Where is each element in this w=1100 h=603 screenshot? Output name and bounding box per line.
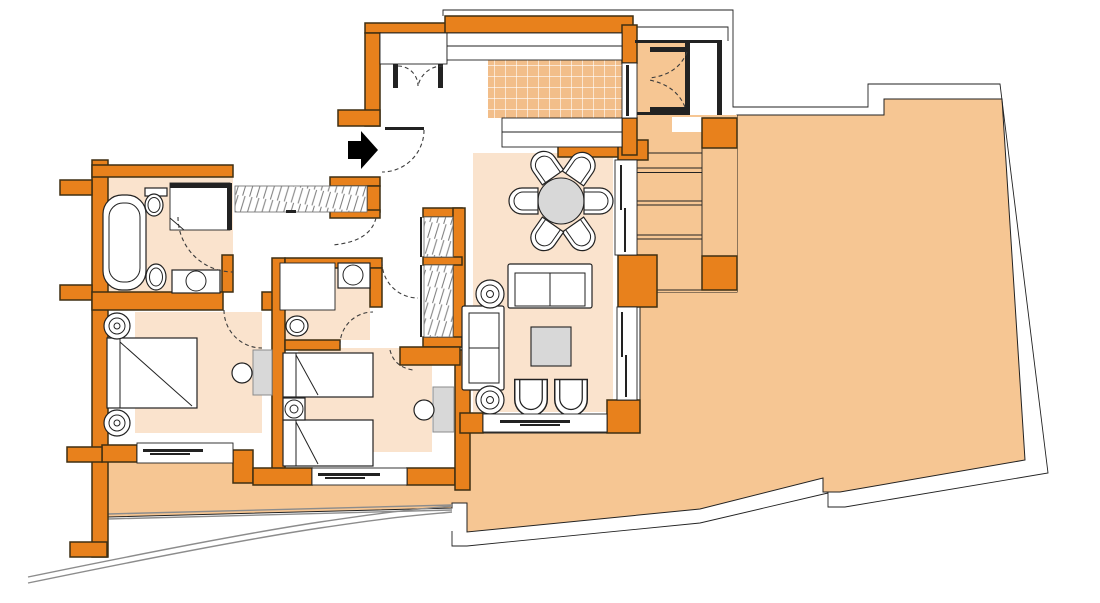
bidet bbox=[146, 264, 166, 290]
shower bbox=[170, 183, 232, 230]
round-dining-table bbox=[538, 178, 584, 224]
kitchen-tiled-floor bbox=[488, 58, 622, 118]
terrace-storage-room-floor bbox=[637, 43, 685, 113]
sliding-glass-door bbox=[615, 160, 637, 255]
storage-door-leaf bbox=[650, 47, 687, 52]
stool bbox=[232, 363, 252, 383]
sliding-glass-door bbox=[617, 307, 637, 400]
storage-door-leaf bbox=[650, 107, 685, 112]
bedroom2-window bbox=[312, 468, 407, 485]
terrace-column bbox=[702, 118, 737, 148]
living-window bbox=[483, 414, 607, 432]
single-bed bbox=[283, 420, 373, 466]
floor-plant bbox=[476, 280, 504, 308]
sofa bbox=[508, 264, 592, 308]
dresser bbox=[433, 387, 454, 432]
dresser bbox=[253, 350, 272, 395]
step-landing-notch bbox=[672, 117, 702, 132]
sofa bbox=[462, 306, 504, 390]
toilet bbox=[286, 316, 308, 336]
bedroom-window bbox=[137, 443, 233, 463]
washbasin-vanity bbox=[172, 270, 220, 293]
round-nightstand bbox=[104, 410, 130, 436]
kitchen-counter-top bbox=[447, 33, 622, 60]
round-nightstand bbox=[104, 313, 130, 339]
stool bbox=[414, 400, 434, 420]
hallway-wardrobe bbox=[235, 186, 367, 213]
single-bed bbox=[283, 353, 373, 397]
coffee-table bbox=[531, 327, 571, 366]
kitchen-counter-bottom bbox=[502, 118, 622, 147]
entrance-door bbox=[385, 127, 424, 130]
bathtub bbox=[103, 195, 146, 290]
double-bed bbox=[107, 338, 197, 408]
floor-plant bbox=[476, 386, 504, 414]
nightstand bbox=[283, 398, 305, 420]
roof-overhang-line bbox=[633, 27, 728, 41]
washbasin bbox=[338, 263, 370, 288]
hall-closet bbox=[420, 217, 453, 337]
entrance-door-swing bbox=[382, 130, 424, 172]
floor-plan bbox=[0, 0, 1100, 603]
kitchen-service-door bbox=[622, 63, 637, 118]
terrace-column bbox=[702, 256, 737, 290]
entry-closet bbox=[380, 33, 447, 64]
entrance-arrow bbox=[348, 131, 378, 169]
shower bbox=[280, 263, 335, 310]
